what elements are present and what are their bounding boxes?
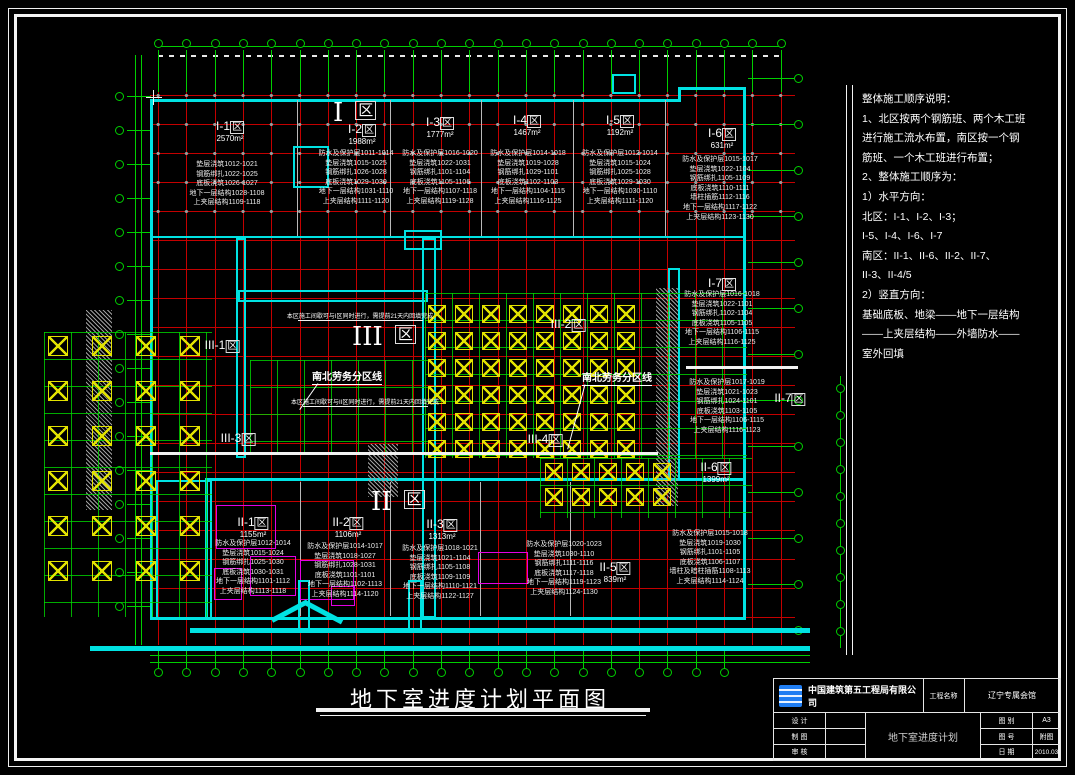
axis-bubble bbox=[324, 39, 333, 48]
note-line: 2）竖直方向： bbox=[862, 286, 1060, 306]
axis-bubble bbox=[296, 39, 305, 48]
task-line: 垫层浇筑1018-1027 bbox=[307, 552, 382, 562]
column-symbol bbox=[180, 516, 200, 536]
axis-stub bbox=[127, 300, 151, 301]
axis-stub bbox=[300, 648, 301, 670]
column-symbol bbox=[563, 386, 581, 404]
task-line: 底板浇筑1030-1031 bbox=[215, 568, 290, 578]
zone-tasks-I-3: 防水及保护层1016-1020垫层浇筑1022-1031钢筋绑扎1101-110… bbox=[402, 149, 477, 207]
zone-label-II-3: II-3区 bbox=[426, 516, 457, 531]
zone-area-I-2: 1988m² bbox=[348, 137, 375, 146]
axis-stub bbox=[413, 648, 414, 670]
axis-bubble bbox=[836, 600, 845, 609]
date-label: 日 期 bbox=[981, 745, 1033, 759]
task-line: 地下一层结构1119-1123 bbox=[526, 578, 601, 588]
task-line: 垫层浇筑1012-1021 bbox=[190, 160, 265, 170]
axis-stub bbox=[300, 50, 301, 92]
column-symbol bbox=[653, 488, 671, 506]
task-line: 钢筋绑扎1029-1101 bbox=[490, 168, 565, 178]
axis-bubble bbox=[836, 438, 845, 447]
task-line: 上夹层结构1122-1127 bbox=[402, 592, 477, 602]
note-line: I-5、I-4、I-6、I-7 bbox=[862, 227, 1060, 247]
column-symbol bbox=[428, 359, 446, 377]
column-symbol bbox=[48, 516, 68, 536]
column-symbol bbox=[509, 359, 527, 377]
road-band-2 bbox=[90, 646, 810, 651]
column-symbol bbox=[572, 463, 590, 481]
axis-stub bbox=[667, 648, 668, 670]
task-line: 垫层浇筑1021-1104 bbox=[402, 554, 477, 564]
axis-bubble bbox=[607, 668, 616, 677]
column-symbol bbox=[428, 413, 446, 431]
column-symbol bbox=[590, 332, 608, 350]
axis-stub bbox=[469, 648, 470, 670]
task-line: 上夹层结构1123-1130 bbox=[682, 213, 757, 223]
construction-sequence-notes: 整体施工顺序说明：1、北区按两个钢筋班、两个木工班进行施工流水布置，南区按一个钢… bbox=[862, 90, 1060, 364]
task-line: 上夹层结构1114-1124 bbox=[670, 577, 751, 587]
task-line: 地下一层结构1107-1118 bbox=[402, 187, 477, 197]
zone-label-III-3: III-3区 bbox=[221, 430, 256, 445]
task-line: 钢筋绑扎1024-1101 bbox=[689, 397, 764, 407]
task-line: 防水及保护层1017-1019 bbox=[689, 378, 764, 388]
column-symbol bbox=[455, 359, 473, 377]
task-line: 防水及保护层1020-1023 bbox=[526, 540, 601, 550]
axis-bubble bbox=[794, 442, 803, 451]
zone-separator bbox=[480, 482, 481, 616]
grid-line-horizontal bbox=[150, 240, 795, 241]
column-symbol bbox=[482, 386, 500, 404]
axis-stub bbox=[328, 648, 329, 670]
column-symbol bbox=[572, 488, 590, 506]
axis-bubble bbox=[794, 488, 803, 497]
zone-tasks-I-6: 防水及保护层1015-1017垫层浇筑1022-1104钢筋绑扎1105-110… bbox=[682, 155, 757, 222]
cad-sheet: I-1区2570m²垫层浇筑1012-1021钢筋绑扎1022-1025底板浇筑… bbox=[0, 0, 1075, 775]
axis-bubble bbox=[635, 668, 644, 677]
axis-bubble bbox=[836, 465, 845, 474]
task-line: 地下一层结构1110-1121 bbox=[402, 582, 477, 592]
road-band-1 bbox=[190, 628, 810, 633]
column-symbol bbox=[48, 561, 68, 581]
task-line: 钢筋绑扎1105-1109 bbox=[682, 174, 757, 184]
axis-stub bbox=[328, 50, 329, 92]
axis-bubble bbox=[720, 39, 729, 48]
axis-stub bbox=[748, 538, 794, 539]
column-symbol bbox=[180, 426, 200, 446]
axis-stub bbox=[724, 648, 725, 670]
zone-separator bbox=[665, 100, 666, 236]
corridor-horizontal bbox=[238, 290, 428, 302]
axis-bubble bbox=[794, 166, 803, 175]
column-symbol bbox=[617, 440, 635, 458]
zone-area-II-6: 1399m² bbox=[702, 475, 729, 484]
zone-label-II-1: II-1区 bbox=[237, 514, 268, 529]
axis-bubble bbox=[550, 668, 559, 677]
axis-bubble bbox=[794, 304, 803, 313]
axis-bubble bbox=[239, 39, 248, 48]
task-line: 上夹层结构1113-1118 bbox=[215, 587, 290, 597]
task-line: 底板浇筑1029-1030 bbox=[319, 178, 394, 188]
task-line: 防水及保护层1012-1014 bbox=[215, 539, 290, 549]
axis-bubble bbox=[777, 39, 786, 48]
axis-stub bbox=[413, 50, 414, 92]
axis-bubble bbox=[522, 39, 531, 48]
task-line: 地下一层结构1106-1115 bbox=[689, 416, 764, 426]
zone-separator bbox=[573, 100, 574, 236]
column-symbol bbox=[617, 332, 635, 350]
title-underline-thin bbox=[320, 715, 646, 716]
axis-bubble bbox=[115, 228, 124, 237]
building-outline-top bbox=[150, 99, 681, 102]
zone-tasks-II-6: 防水及保护层1015-1018垫层浇筑1019-1030钢筋绑扎1101-110… bbox=[670, 529, 751, 587]
project-label-cell: 工程名称 bbox=[923, 679, 965, 713]
axis-bubble bbox=[115, 296, 124, 305]
labor-division-label: 南北劳务分区线 bbox=[312, 368, 382, 385]
axis-bubble bbox=[465, 668, 474, 677]
axis-bubble bbox=[380, 668, 389, 677]
zone-label-II-5: II-5区 bbox=[599, 559, 630, 574]
axis-stub bbox=[441, 50, 442, 92]
axis-stub bbox=[271, 648, 272, 670]
company-logo-icon bbox=[779, 685, 802, 707]
task-line: 底板浇筑1105-1106 bbox=[402, 178, 477, 188]
axis-bubble bbox=[522, 668, 531, 677]
plan-annotation: 本区施工间歇可与II区同时进行，需提前21天内回填完成 bbox=[291, 397, 439, 406]
axis-stub bbox=[696, 648, 697, 670]
axis-stub bbox=[498, 648, 499, 670]
axis-bubble bbox=[663, 668, 672, 677]
task-line: 底板浇筑1110-1111 bbox=[682, 184, 757, 194]
zone-area-II-3: 1313m² bbox=[428, 532, 455, 541]
column-symbol bbox=[590, 386, 608, 404]
zone-tasks-I-4: 防水及保护层1014-1018垫层浇筑1019-1028钢筋绑扎1029-110… bbox=[490, 149, 565, 207]
task-line: 钢筋绑扎1026-1028 bbox=[319, 168, 394, 178]
column-symbol bbox=[455, 440, 473, 458]
column-symbol bbox=[599, 463, 617, 481]
axis-stub bbox=[748, 124, 794, 125]
task-line: 垫层浇筑1019-1028 bbox=[490, 159, 565, 169]
task-line: 地下一层结构1030-1110 bbox=[582, 187, 657, 197]
axis-stub bbox=[526, 50, 527, 92]
axis-stub bbox=[271, 50, 272, 92]
column-symbol bbox=[180, 471, 200, 491]
axis-bubble bbox=[115, 126, 124, 135]
column-symbol bbox=[482, 332, 500, 350]
task-line: 防水及保护层1015-1017 bbox=[682, 155, 757, 165]
column-symbol bbox=[180, 381, 200, 401]
axis-stub bbox=[186, 50, 187, 92]
sheet-no-value: 附图 bbox=[1033, 729, 1060, 745]
task-line: 钢筋绑扎1111-1116 bbox=[526, 559, 601, 569]
axis-bubble bbox=[115, 262, 124, 271]
zone-label-I-5: I-5区 bbox=[606, 112, 634, 127]
column-symbol bbox=[536, 413, 554, 431]
sheet-no-label: 图 号 bbox=[981, 729, 1033, 745]
axis-stub bbox=[243, 648, 244, 670]
axis-stub bbox=[469, 50, 470, 92]
task-line: 钢筋绑扎1101-1104 bbox=[402, 168, 477, 178]
detail-magenta bbox=[478, 552, 528, 584]
task-line: 钢筋绑扎1022-1025 bbox=[190, 170, 265, 180]
axis-stub bbox=[639, 50, 640, 92]
column-symbol bbox=[482, 440, 500, 458]
task-line: 防水及保护层1016-1020 bbox=[402, 149, 477, 159]
role-value-draft bbox=[826, 729, 866, 745]
axis-stub bbox=[748, 262, 794, 263]
column-symbol bbox=[48, 381, 68, 401]
role-value-check bbox=[826, 745, 866, 759]
axis-bubble bbox=[239, 668, 248, 677]
zone-tasks-II-3: 防水及保护层1018-1021垫层浇筑1021-1104钢筋绑扎1105-110… bbox=[402, 544, 477, 602]
task-line: 上夹层结构1116-1125 bbox=[490, 197, 565, 207]
axis-bubble bbox=[211, 668, 220, 677]
task-line: 地下一层结构1028-1108 bbox=[190, 189, 265, 199]
date-value: 2010.03 bbox=[1033, 745, 1060, 759]
column-symbol bbox=[455, 386, 473, 404]
title-block: 中国建筑第五工程局有限公司 工程名称 辽宁专属会馆 设 计 制 图 审 核 地下… bbox=[773, 678, 1061, 761]
axis-bubble bbox=[836, 573, 845, 582]
role-label-check: 审 核 bbox=[774, 745, 826, 759]
zone-label-III-1: III-1区 bbox=[205, 337, 240, 352]
axis-bubble bbox=[437, 39, 446, 48]
column-symbol bbox=[545, 488, 563, 506]
task-line: 防水及保护层1012-1014 bbox=[582, 149, 657, 159]
column-symbol bbox=[590, 413, 608, 431]
column-symbol bbox=[92, 381, 112, 401]
task-line: 底板浇筑1117-1118 bbox=[526, 569, 601, 579]
note-line: ——上夹层结构——外墙防水—— bbox=[862, 325, 1060, 345]
column-symbol bbox=[92, 426, 112, 446]
column-symbol bbox=[509, 386, 527, 404]
axis-bubble bbox=[324, 668, 333, 677]
axis-bubble bbox=[836, 411, 845, 420]
zone-label-II-6: II-6区 bbox=[700, 459, 731, 474]
column-symbol bbox=[48, 426, 68, 446]
column-symbol bbox=[545, 463, 563, 481]
task-line: 地下一层结构1104-1115 bbox=[490, 187, 565, 197]
zone-tasks-I-1: 垫层浇筑1012-1021钢筋绑扎1022-1025底板浇筑1026-1027地… bbox=[190, 160, 265, 208]
zone-label-III-2: III-2区 bbox=[551, 316, 586, 331]
task-line: 防水及保护层1016-1018 bbox=[684, 290, 759, 300]
column-symbol bbox=[455, 413, 473, 431]
column-symbol bbox=[617, 386, 635, 404]
axis-stub bbox=[748, 584, 794, 585]
column-symbol bbox=[48, 336, 68, 356]
role-label-design: 设 计 bbox=[774, 713, 826, 729]
axis-stub bbox=[639, 648, 640, 670]
task-line: 上夹层结构1114-1120 bbox=[307, 590, 382, 600]
column-symbol bbox=[180, 336, 200, 356]
task-line: 底板浇筑1103-1105 bbox=[689, 407, 764, 417]
task-line: 底板浇筑1029-1030 bbox=[582, 178, 657, 188]
task-line: 底板浇筑1102-1103 bbox=[490, 178, 565, 188]
zone-label-III-4: III-4区 bbox=[528, 431, 563, 446]
column-symbol bbox=[136, 561, 156, 581]
axis-bubble bbox=[794, 580, 803, 589]
axis-stub bbox=[748, 492, 794, 493]
column-symbol bbox=[136, 471, 156, 491]
axis-stub bbox=[441, 648, 442, 670]
task-line: 地下一层结构1101-1112 bbox=[215, 577, 290, 587]
building-outline-bottom bbox=[153, 617, 746, 620]
note-line: 进行施工流水布置，南区按一个钢 bbox=[862, 129, 1060, 149]
detail-box-topright bbox=[612, 74, 636, 94]
axis-bubble bbox=[794, 120, 803, 129]
axis-bubble bbox=[409, 668, 418, 677]
axis-line-bottom-2 bbox=[150, 662, 810, 663]
column-symbol bbox=[599, 488, 617, 506]
zone-label-II-7: II-7区 bbox=[774, 390, 805, 405]
column-symbol bbox=[136, 426, 156, 446]
column-symbol bbox=[563, 440, 581, 458]
column-symbol bbox=[482, 305, 500, 323]
sheet-type-label: 图 别 bbox=[981, 713, 1033, 729]
axis-stub bbox=[498, 50, 499, 92]
axis-stub bbox=[158, 648, 159, 670]
column-symbol bbox=[509, 305, 527, 323]
column-symbol bbox=[92, 516, 112, 536]
note-line: 整体施工顺序说明： bbox=[862, 90, 1060, 110]
task-line: 墙柱及暗柱插筋1108-1113 bbox=[670, 567, 751, 577]
axis-stub bbox=[127, 232, 151, 233]
note-line: 南区：II-1、II-6、II-2、II-7、 bbox=[862, 247, 1060, 267]
axis-stub bbox=[752, 50, 753, 92]
axis-bubble bbox=[579, 668, 588, 677]
column-symbol bbox=[136, 336, 156, 356]
axis-stub bbox=[384, 50, 385, 92]
column-symbol bbox=[48, 471, 68, 491]
axis-stub bbox=[127, 198, 151, 199]
zone-tasks-II-5: 防水及保护层1020-1023垫层浇筑1030-1110钢筋绑扎1111-111… bbox=[526, 540, 601, 598]
column-symbol bbox=[92, 471, 112, 491]
axis-bubble bbox=[437, 668, 446, 677]
title-underline bbox=[316, 708, 650, 712]
column-symbol bbox=[617, 305, 635, 323]
axis-stub bbox=[356, 50, 357, 92]
task-line: 垫层浇筑1015-1025 bbox=[319, 159, 394, 169]
task-line: 垫层浇筑1030-1110 bbox=[526, 550, 601, 560]
column-symbol bbox=[509, 440, 527, 458]
task-line: 底板浇筑1026-1027 bbox=[190, 179, 265, 189]
dimension-line-right-2 bbox=[852, 85, 853, 655]
zone-tasks-I-2: 防水及保护层1011-1014垫层浇筑1015-1025钢筋绑扎1026-102… bbox=[319, 149, 394, 207]
task-line: 底板浇筑1105-1105 bbox=[684, 319, 759, 329]
task-line: 底板浇筑1106-1107 bbox=[670, 558, 751, 568]
axis-stub bbox=[554, 648, 555, 670]
axis-bubble bbox=[154, 39, 163, 48]
zone-tasks-I-5: 防水及保护层1012-1014垫层浇筑1015-1024钢筋绑扎1025-102… bbox=[582, 149, 657, 207]
axis-stub bbox=[215, 50, 216, 92]
plan-annotation: 本区施工间歇可与I区同时进行，需提前21天内回填完成 bbox=[287, 311, 433, 320]
task-line: 防水及保护层1014-1017 bbox=[307, 542, 382, 552]
axis-bubble bbox=[409, 39, 418, 48]
task-line: 上夹层结构1109-1118 bbox=[190, 198, 265, 208]
axis-bubble bbox=[607, 39, 616, 48]
axis-bubble bbox=[836, 519, 845, 528]
column-symbol bbox=[482, 359, 500, 377]
axis-stub bbox=[215, 648, 216, 670]
column-symbol bbox=[428, 332, 446, 350]
axis-bubble bbox=[794, 74, 803, 83]
zone-label-I-6: I-6区 bbox=[708, 125, 736, 140]
axis-stub bbox=[186, 648, 187, 670]
axis-bubble bbox=[692, 668, 701, 677]
column-symbol bbox=[626, 488, 644, 506]
axis-stub bbox=[384, 648, 385, 670]
labor-division-line-right bbox=[686, 366, 798, 369]
building-outline-top-right bbox=[678, 87, 746, 90]
column-symbol bbox=[590, 440, 608, 458]
task-line: 防水及保护层1015-1018 bbox=[670, 529, 751, 539]
column-symbol bbox=[180, 561, 200, 581]
zone-tasks-I-7: 防水及保护层1016-1018垫层浇筑1022-1101钢筋绑扎1102-110… bbox=[684, 290, 759, 348]
zone-area-I-1: 2570m² bbox=[216, 134, 243, 143]
axis-bubble bbox=[494, 39, 503, 48]
axis-bubble bbox=[720, 668, 729, 677]
note-line: 筋班、一个木工班进行布置； bbox=[862, 149, 1060, 169]
crosshair-v bbox=[153, 90, 154, 105]
column-symbol bbox=[136, 381, 156, 401]
axis-bubble bbox=[211, 39, 220, 48]
task-line: 钢筋绑扎1101-1105 bbox=[670, 548, 751, 558]
note-line: 北区：I-1、I-2、I-3； bbox=[862, 208, 1060, 228]
role-value-design bbox=[826, 713, 866, 729]
axis-stub bbox=[748, 354, 794, 355]
axis-stub bbox=[127, 164, 151, 165]
column-symbol bbox=[653, 463, 671, 481]
company-name: 中国建筑第五工程局有限公司 bbox=[808, 683, 923, 709]
task-line: 底板浇筑1109-1109 bbox=[402, 573, 477, 583]
note-line: 1）水平方向： bbox=[862, 188, 1060, 208]
axis-bubble bbox=[794, 534, 803, 543]
task-line: 垫层浇筑1022-1104 bbox=[682, 165, 757, 175]
task-line: 防水及保护层1011-1014 bbox=[319, 149, 394, 159]
task-line: 钢筋绑扎1028-1031 bbox=[307, 561, 382, 571]
column-symbol bbox=[617, 413, 635, 431]
axis-bubble bbox=[115, 194, 124, 203]
project-name-cell: 辽宁专属会馆 bbox=[964, 679, 1060, 713]
task-line: 上夹层结构1111-1120 bbox=[319, 197, 394, 207]
axis-bubble bbox=[154, 668, 163, 677]
task-line: 垫层浇筑1021-1023 bbox=[689, 388, 764, 398]
task-line: 垫层浇筑1015-1024 bbox=[215, 549, 290, 559]
labor-division-line bbox=[150, 452, 658, 455]
axis-stub bbox=[127, 266, 151, 267]
axis-stub bbox=[724, 50, 725, 92]
task-line: 垫层浇筑1019-1030 bbox=[670, 539, 751, 549]
task-line: 垫层浇筑1022-1101 bbox=[684, 300, 759, 310]
axis-bubble bbox=[115, 160, 124, 169]
column-symbol bbox=[536, 332, 554, 350]
grid-line-horizontal bbox=[150, 269, 795, 270]
axis-stub bbox=[158, 50, 159, 92]
axis-stub bbox=[554, 50, 555, 92]
axis-bubble bbox=[267, 668, 276, 677]
zone-area-I-4: 1467m² bbox=[513, 128, 540, 137]
task-line: 防水及保护层1018-1021 bbox=[402, 544, 477, 554]
zone-tasks-II-1: 防水及保护层1012-1014垫层浇筑1015-1024钢筋绑扎1025-103… bbox=[215, 539, 290, 597]
task-line: 钢筋绑扎1105-1108 bbox=[402, 563, 477, 573]
task-line: 防水及保护层1014-1018 bbox=[490, 149, 565, 159]
task-line: 上夹层结构1116-1123 bbox=[689, 426, 764, 436]
axis-stub bbox=[583, 50, 584, 92]
crosshair-h bbox=[146, 97, 162, 98]
task-line: 上夹层结构1116-1125 bbox=[684, 338, 759, 348]
axis-stub bbox=[243, 50, 244, 92]
task-line: 上夹层结构1119-1128 bbox=[402, 197, 477, 207]
axis-bubble bbox=[182, 668, 191, 677]
axis-bubble bbox=[794, 258, 803, 267]
axis-bubble bbox=[579, 39, 588, 48]
